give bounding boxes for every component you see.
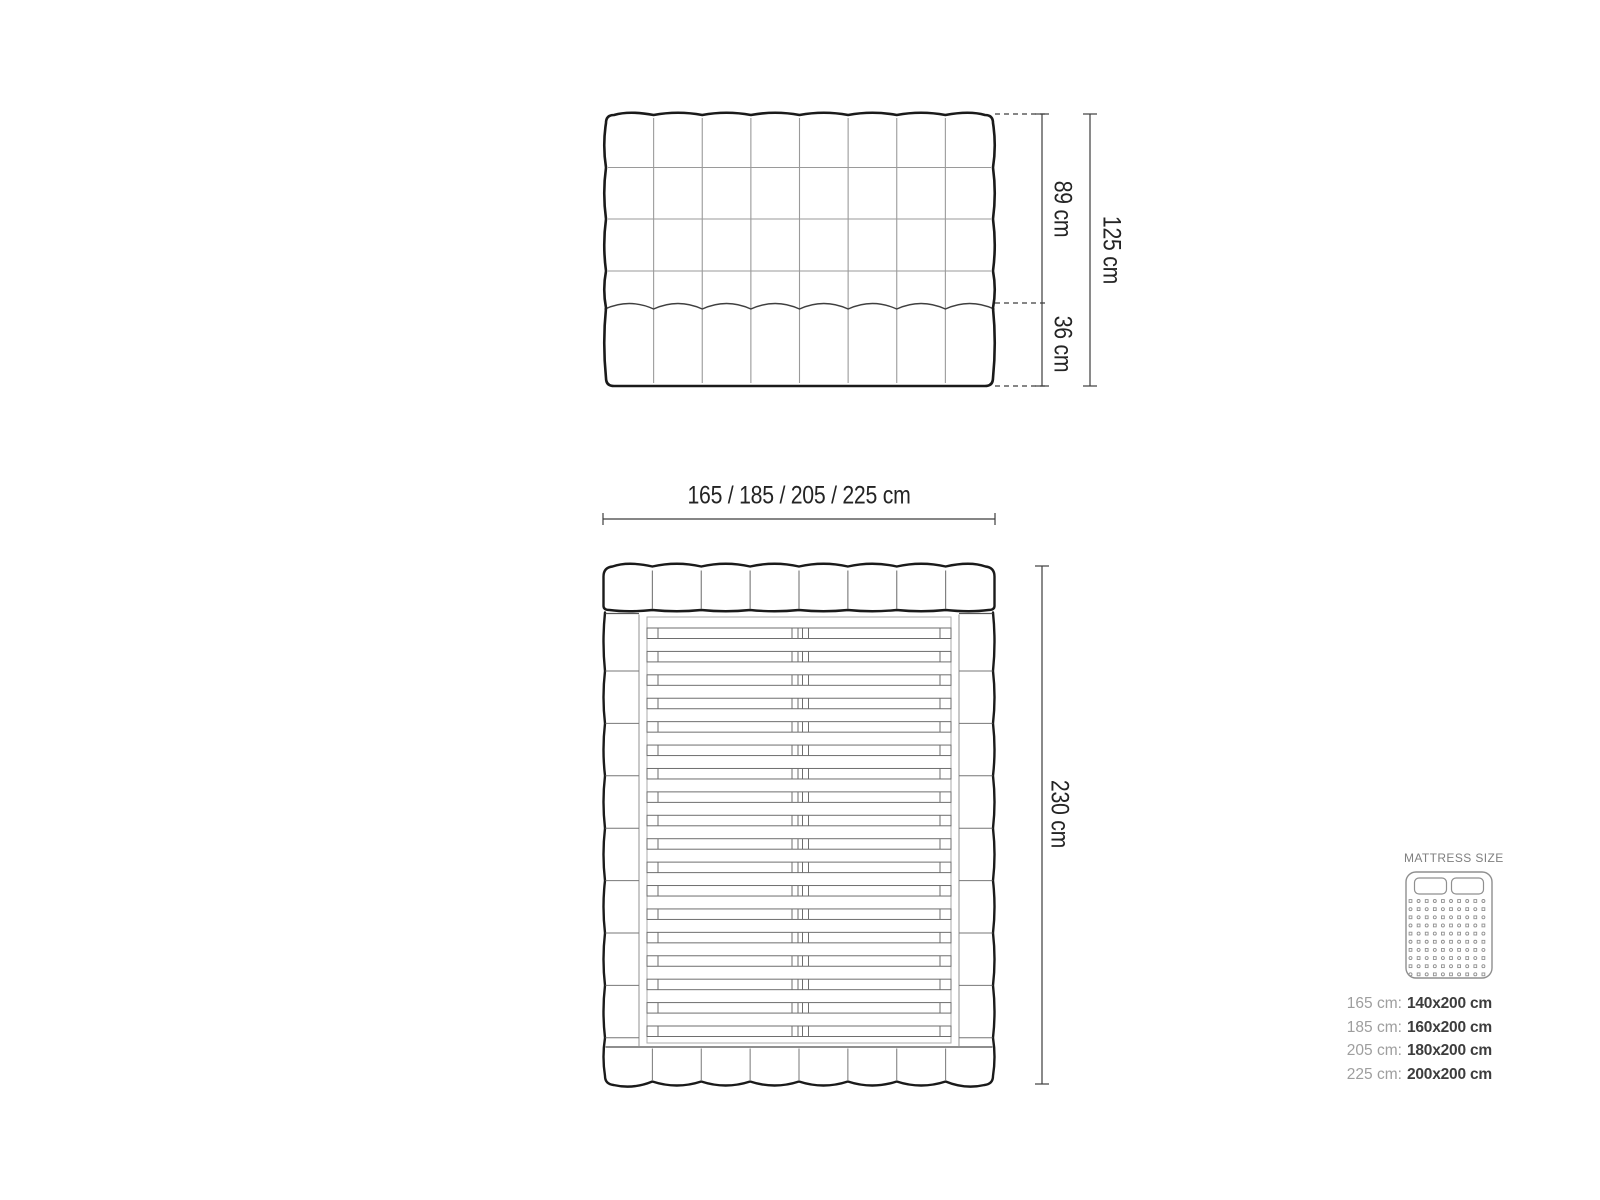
dimension-label-upper-height: 89 cm	[1048, 181, 1077, 238]
mattress-size-table: 165 cm: 140x200 cm 185 cm: 160x200 cm 20…	[1310, 995, 1492, 1089]
bed-top-view	[604, 564, 995, 1087]
frame-width-label: 225 cm:	[1347, 1066, 1402, 1084]
mattress-size-row: 185 cm: 160x200 cm	[1310, 1019, 1492, 1043]
frame-width-label: 165 cm:	[1347, 995, 1402, 1013]
legend-title: MATTRESS SIZE	[1404, 851, 1494, 865]
headboard-front-view	[604, 113, 995, 386]
frame-width-label: 185 cm:	[1347, 1019, 1402, 1037]
dimension-label-width-options: 165 / 185 / 205 / 225 cm	[687, 482, 910, 511]
dimension-label-length: 230 cm	[1045, 780, 1074, 848]
mattress-dimensions-value: 200x200 cm	[1407, 1066, 1492, 1084]
mattress-icon	[1406, 872, 1492, 978]
mattress-dimensions-value: 140x200 cm	[1407, 995, 1492, 1013]
frame-width-label: 205 cm:	[1347, 1042, 1402, 1060]
height-dimension-lines	[995, 114, 1097, 386]
dimension-label-lower-height: 36 cm	[1048, 316, 1077, 373]
width-dimension-line	[603, 513, 995, 525]
dimension-label-total-height: 125 cm	[1097, 216, 1126, 284]
bed-dimension-diagram: 165 / 185 / 205 / 225 cm 89 cm 36 cm 125…	[0, 0, 1600, 1200]
mattress-dimensions-value: 160x200 cm	[1407, 1019, 1492, 1037]
mattress-size-row: 205 cm: 180x200 cm	[1310, 1042, 1492, 1066]
mattress-size-row: 225 cm: 200x200 cm	[1310, 1066, 1492, 1090]
mattress-dimensions-value: 180x200 cm	[1407, 1042, 1492, 1060]
mattress-size-row: 165 cm: 140x200 cm	[1310, 995, 1492, 1019]
